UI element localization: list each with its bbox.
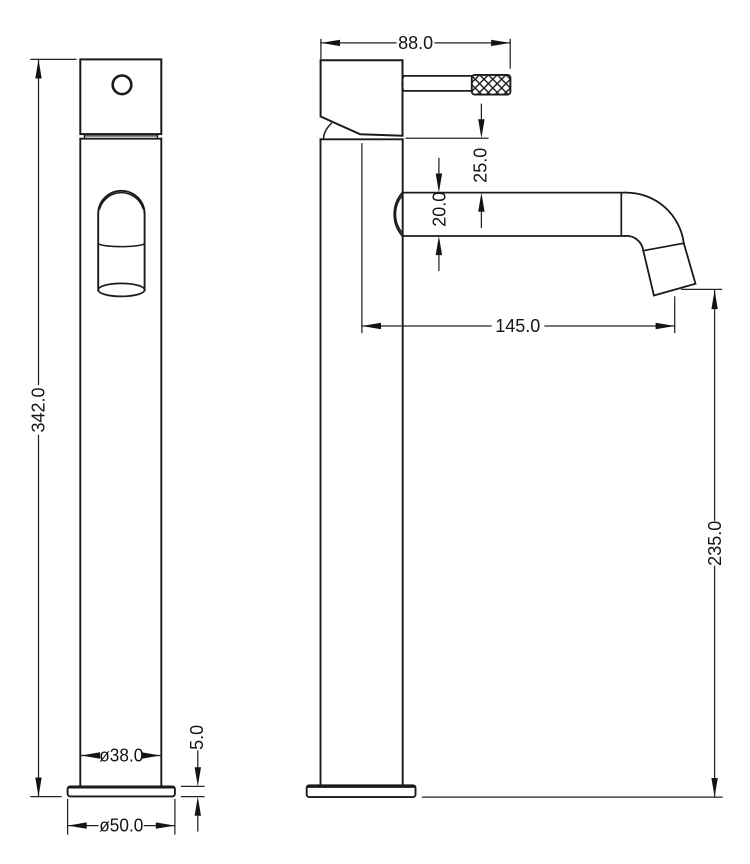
svg-text:88.0: 88.0 bbox=[398, 33, 433, 53]
svg-text:235.0: 235.0 bbox=[705, 521, 725, 566]
svg-text:5.0: 5.0 bbox=[187, 725, 207, 750]
svg-text:342.0: 342.0 bbox=[29, 387, 49, 432]
svg-text:ø50.0: ø50.0 bbox=[99, 816, 143, 836]
svg-text:145.0: 145.0 bbox=[495, 316, 540, 336]
svg-text:ø38.0: ø38.0 bbox=[99, 746, 143, 766]
svg-text:20.0: 20.0 bbox=[430, 192, 450, 227]
svg-text:25.0: 25.0 bbox=[471, 148, 491, 183]
